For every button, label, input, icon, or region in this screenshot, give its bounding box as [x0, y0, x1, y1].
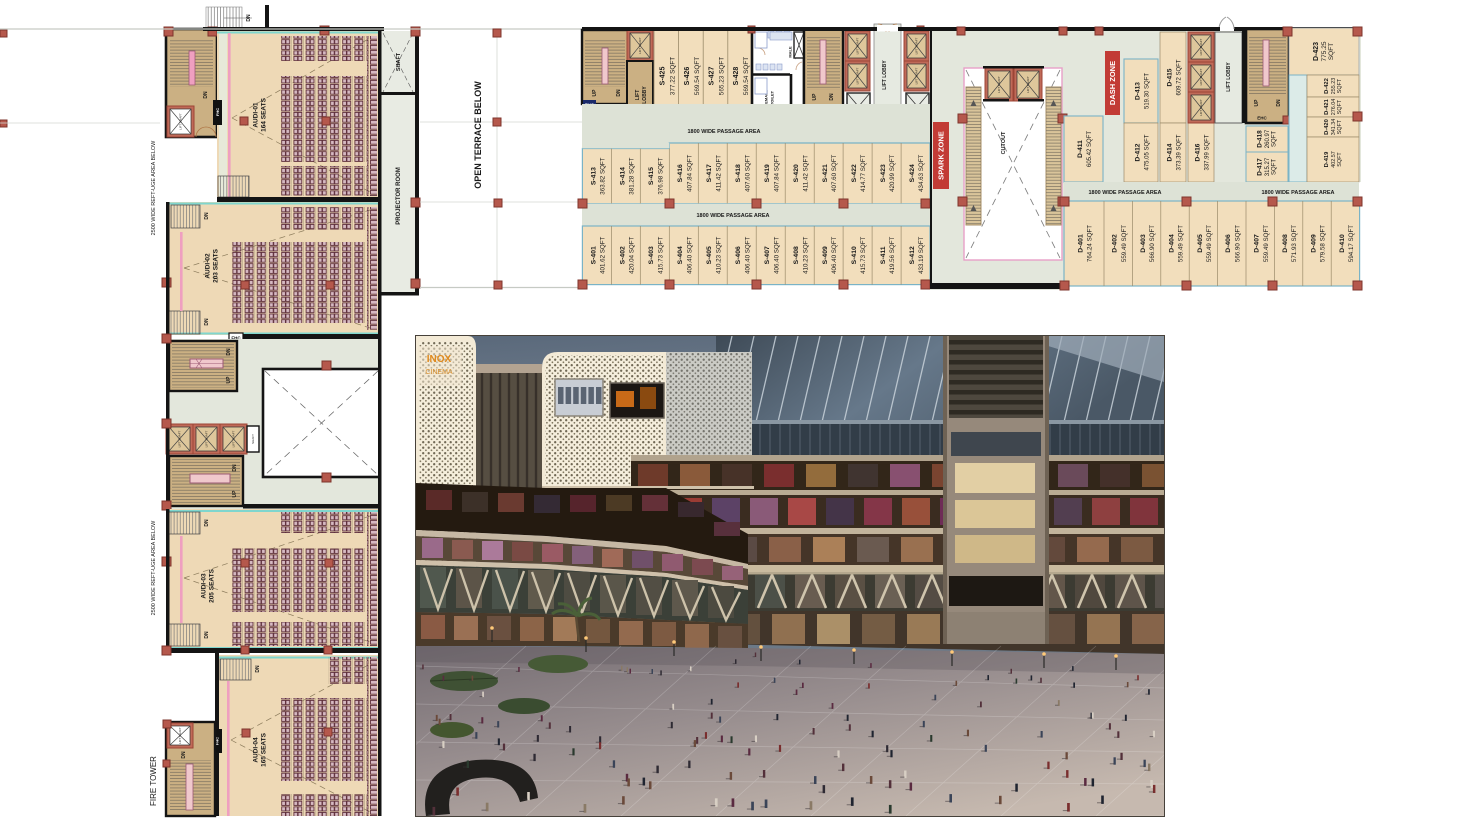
svg-text:411.42 SQFT: 411.42 SQFT	[802, 155, 809, 192]
svg-text:1800 WIDE PASSAGE AREA: 1800 WIDE PASSAGE AREA	[1088, 190, 1161, 196]
svg-text:S-408: S-408	[793, 246, 800, 264]
svg-text:LIFT SHAFT: LIFT SHAFT	[1199, 38, 1203, 55]
svg-text:1800 WIDE PASSAGE AREA: 1800 WIDE PASSAGE AREA	[696, 213, 769, 219]
svg-text:S-418: S-418	[735, 164, 742, 182]
svg-text:PROJECTOR ROOM: PROJECTOR ROOM	[396, 167, 402, 225]
svg-text:407.84 SQFT: 407.84 SQFT	[686, 155, 693, 192]
svg-text:DN: DN	[616, 89, 622, 97]
svg-text:579.58 SQFT: 579.58 SQFT	[1320, 225, 1327, 262]
svg-text:569.54 SQFT: 569.54 SQFT	[743, 57, 750, 95]
svg-text:AUDI-04: AUDI-04	[252, 737, 259, 763]
svg-text:401.62 SQFT: 401.62 SQFT	[600, 237, 607, 274]
svg-text:164 SEATS: 164 SEATS	[260, 97, 267, 132]
svg-text:S-406: S-406	[735, 246, 742, 264]
svg-text:475.05 SQFT: 475.05 SQFT	[1145, 134, 1151, 170]
svg-text:D-422: D-422	[1324, 78, 1330, 94]
svg-text:406.40 SQFT: 406.40 SQFT	[744, 237, 751, 274]
svg-text:S-422: S-422	[851, 164, 858, 182]
svg-text:377.22 SQFT: 377.22 SQFT	[669, 57, 676, 95]
svg-text:S-414: S-414	[619, 167, 626, 185]
svg-text:S-404: S-404	[677, 246, 684, 264]
svg-text:D-421: D-421	[1324, 98, 1330, 115]
svg-text:414.77 SQFT: 414.77 SQFT	[860, 155, 867, 192]
svg-text:381.28 SQFT: 381.28 SQFT	[629, 157, 636, 194]
svg-text:411.42 SQFT: 411.42 SQFT	[715, 155, 722, 192]
svg-text:SQFT: SQFT	[1337, 119, 1343, 134]
svg-text:S-421: S-421	[822, 164, 829, 182]
svg-text:LIFT SHAFT: LIFT SHAFT	[205, 430, 209, 447]
svg-text:LIFT LOBBY: LIFT LOBBY	[1226, 62, 1232, 92]
svg-text:DN: DN	[203, 91, 209, 99]
svg-text:DN: DN	[232, 464, 238, 472]
svg-text:D-409: D-409	[1310, 234, 1317, 253]
svg-text:376.98 SQFT: 376.98 SQFT	[657, 157, 664, 194]
svg-text:594.17 SQFT: 594.17 SQFT	[1348, 225, 1355, 262]
svg-text:S-411: S-411	[880, 246, 887, 264]
svg-text:LIFT SHAFT: LIFT SHAFT	[1026, 76, 1030, 93]
svg-text:UP: UP	[592, 89, 598, 97]
svg-text:AUDI-01: AUDI-01	[252, 102, 259, 128]
svg-text:605.42 SQFT: 605.42 SQFT	[1087, 131, 1093, 167]
svg-text:609.72 SQFT: 609.72 SQFT	[1177, 59, 1183, 95]
svg-text:434.63 SQFT: 434.63 SQFT	[918, 155, 925, 192]
svg-text:406.40 SQFT: 406.40 SQFT	[686, 237, 693, 274]
svg-text:SHAFT: SHAFT	[396, 52, 402, 71]
svg-text:2500 WIDE REFT-UGE AREA BELOW: 2500 WIDE REFT-UGE AREA BELOW	[151, 520, 157, 616]
svg-text:S-410: S-410	[851, 246, 858, 264]
svg-text:DN: DN	[204, 212, 210, 220]
svg-text:S-409: S-409	[822, 246, 829, 264]
svg-text:SPARK ZONE: SPARK ZONE	[937, 131, 946, 180]
svg-text:433.19 SQFT: 433.19 SQFT	[918, 237, 925, 274]
svg-text:EHC: EHC	[1257, 116, 1267, 121]
svg-text:203 SEATS: 203 SEATS	[212, 248, 219, 283]
svg-text:D-411: D-411	[1077, 140, 1084, 158]
svg-text:406.40 SQFT: 406.40 SQFT	[773, 237, 780, 274]
svg-text:569.54 SQFT: 569.54 SQFT	[694, 57, 701, 95]
svg-text:S-407: S-407	[764, 246, 771, 264]
svg-text:LIFT SHAFT: LIFT SHAFT	[997, 76, 1001, 93]
svg-text:D-420: D-420	[1324, 119, 1330, 135]
svg-text:SQFT: SQFT	[1271, 159, 1277, 175]
svg-text:519.30 SQFT: 519.30 SQFT	[1145, 73, 1151, 109]
svg-text:315.27: 315.27	[1265, 157, 1271, 176]
svg-text:764.24 SQFT: 764.24 SQFT	[1087, 225, 1094, 262]
svg-text:FHC: FHC	[215, 108, 220, 116]
svg-text:LIFT SHAFT: LIFT SHAFT	[638, 37, 642, 54]
svg-text:LIFT SHAFT: LIFT SHAFT	[856, 67, 860, 84]
svg-text:1800 WIDE PASSAGE AREA: 1800 WIDE PASSAGE AREA	[1261, 190, 1334, 196]
svg-text:UP: UP	[232, 490, 238, 498]
svg-text:UP: UP	[1254, 99, 1260, 107]
svg-text:S-401: S-401	[590, 246, 597, 264]
svg-text:S-413: S-413	[590, 167, 597, 185]
svg-text:DN: DN	[181, 751, 187, 759]
svg-text:S-416: S-416	[677, 164, 684, 182]
svg-text:2500 WIDE REFT-UGE AREA BELOW: 2500 WIDE REFT-UGE AREA BELOW	[151, 140, 157, 236]
svg-text:415.73 SQFT: 415.73 SQFT	[860, 237, 867, 274]
svg-text:D-407: D-407	[1254, 234, 1261, 253]
svg-text:SQFT: SQFT	[1271, 131, 1277, 147]
svg-text:1800 WIDE PASSAGE AREA: 1800 WIDE PASSAGE AREA	[687, 129, 760, 135]
svg-text:566.90 SQFT: 566.90 SQFT	[1149, 225, 1156, 262]
svg-text:CUTOUT: CUTOUT	[1001, 131, 1007, 154]
svg-text:S-415: S-415	[648, 167, 655, 185]
svg-text:D-419: D-419	[1324, 151, 1330, 168]
svg-text:LOBBY: LOBBY	[642, 86, 648, 104]
svg-text:566.90 SQFT: 566.90 SQFT	[1234, 225, 1241, 262]
svg-text:363.82 SQFT: 363.82 SQFT	[600, 157, 607, 194]
svg-text:LIFT SHAFT: LIFT SHAFT	[915, 67, 919, 84]
svg-text:LIFT SHAFT: LIFT SHAFT	[1199, 68, 1203, 85]
svg-text:DASH ZONE: DASH ZONE	[1108, 61, 1117, 105]
svg-text:415.73 SQFT: 415.73 SQFT	[657, 237, 664, 274]
svg-text:D-404: D-404	[1168, 234, 1175, 253]
svg-text:S-428: S-428	[733, 67, 740, 86]
svg-text:419.56 SQFT: 419.56 SQFT	[889, 237, 896, 274]
svg-text:S-405: S-405	[706, 246, 713, 264]
svg-text:S-420: S-420	[793, 164, 800, 182]
svg-text:D-414: D-414	[1167, 143, 1174, 161]
svg-text:260.97: 260.97	[1265, 129, 1271, 148]
svg-text:D-406: D-406	[1225, 234, 1232, 253]
svg-text:775.25: 775.25	[1321, 41, 1328, 61]
svg-text:D-413: D-413	[1135, 82, 1142, 100]
svg-text:337.99 SQFT: 337.99 SQFT	[1205, 134, 1211, 170]
svg-text:D-412: D-412	[1135, 143, 1142, 161]
svg-text:AUDI-03: AUDI-03	[200, 573, 207, 599]
svg-text:FIRE TOWER: FIRE TOWER	[149, 756, 158, 806]
svg-text:S-412: S-412	[909, 246, 916, 264]
svg-text:SQFT: SQFT	[1337, 99, 1343, 114]
svg-text:D-418: D-418	[1257, 130, 1264, 148]
svg-text:LIFT SHAFT: LIFT SHAFT	[179, 113, 183, 130]
svg-text:DN: DN	[1276, 99, 1282, 107]
svg-text:D-410: D-410	[1339, 234, 1346, 253]
svg-text:D-423: D-423	[1313, 42, 1320, 61]
svg-text:571.93 SQFT: 571.93 SQFT	[1291, 225, 1298, 262]
svg-text:SQFT: SQFT	[1337, 152, 1343, 167]
svg-text:D-415: D-415	[1167, 68, 1174, 86]
svg-text:DN: DN	[204, 318, 210, 326]
svg-text:559.49 SQFT: 559.49 SQFT	[1263, 225, 1270, 262]
svg-text:AUDI-02: AUDI-02	[204, 253, 211, 279]
svg-text:D-408: D-408	[1282, 234, 1289, 253]
svg-text:LIFT: LIFT	[635, 90, 641, 101]
svg-text:SQFT: SQFT	[1328, 43, 1335, 60]
svg-text:D-403: D-403	[1140, 234, 1147, 253]
svg-text:LIFT SHAFT: LIFT SHAFT	[1199, 99, 1203, 116]
svg-text:UP: UP	[226, 376, 232, 384]
svg-text:559.49 SQFT: 559.49 SQFT	[1206, 225, 1213, 262]
svg-text:INOX: INOX	[427, 354, 452, 365]
svg-text:559.49 SQFT: 559.49 SQFT	[1178, 225, 1185, 262]
svg-text:DN: DN	[226, 348, 232, 356]
svg-text:S-419: S-419	[764, 164, 771, 182]
svg-text:D-416: D-416	[1195, 143, 1202, 161]
svg-text:D-405: D-405	[1197, 234, 1204, 253]
svg-text:UP: UP	[812, 93, 818, 101]
svg-text:SQFT: SQFT	[1337, 78, 1343, 93]
svg-text:S-425: S-425	[659, 67, 666, 86]
svg-text:LIFT SHAFT: LIFT SHAFT	[232, 430, 236, 447]
svg-text:373.39 SQFT: 373.39 SQFT	[1177, 134, 1183, 170]
svg-text:MALE: MALE	[787, 46, 792, 58]
svg-text:565.23 SQFT: 565.23 SQFT	[719, 57, 726, 95]
svg-text:D-401: D-401	[1077, 234, 1084, 253]
svg-text:LIFT SHAFT: LIFT SHAFT	[856, 37, 860, 54]
svg-text:LIFT LOBBY: LIFT LOBBY	[882, 60, 888, 90]
svg-text:205 SEATS: 205 SEATS	[208, 568, 215, 603]
svg-text:407.60 SQFT: 407.60 SQFT	[744, 155, 751, 192]
svg-text:LIFT SHAFT: LIFT SHAFT	[178, 727, 182, 744]
svg-text:TOILET: TOILET	[769, 90, 774, 105]
svg-text:S-424: S-424	[909, 164, 916, 182]
svg-text:S-427: S-427	[709, 67, 716, 86]
svg-text:DN: DN	[255, 665, 261, 673]
svg-text:S-423: S-423	[880, 164, 887, 182]
svg-text:410.23 SQFT: 410.23 SQFT	[802, 237, 809, 274]
svg-text:S-402: S-402	[619, 246, 626, 264]
svg-text:D-417: D-417	[1257, 158, 1264, 176]
svg-text:CINEMA: CINEMA	[425, 369, 453, 376]
svg-text:DN: DN	[829, 93, 835, 101]
svg-text:165 SEATS: 165 SEATS	[260, 732, 267, 767]
svg-text:LIFT SHAFT: LIFT SHAFT	[915, 37, 919, 54]
svg-text:559.49 SQFT: 559.49 SQFT	[1121, 225, 1128, 262]
svg-text:407.60 SQFT: 407.60 SQFT	[831, 155, 838, 192]
svg-text:S-417: S-417	[706, 164, 713, 182]
svg-text:DN: DN	[246, 14, 252, 22]
svg-text:420.04 SQFT: 420.04 SQFT	[629, 237, 636, 274]
svg-text:S-403: S-403	[648, 246, 655, 264]
svg-text:420.99 SQFT: 420.99 SQFT	[889, 155, 896, 192]
svg-text:410.23 SQFT: 410.23 SQFT	[715, 237, 722, 274]
svg-text:SHAFT: SHAFT	[251, 434, 255, 444]
svg-text:DN: DN	[204, 631, 210, 639]
svg-text:407.84 SQFT: 407.84 SQFT	[773, 155, 780, 192]
svg-text:406.40 SQFT: 406.40 SQFT	[831, 237, 838, 274]
svg-text:LIFT SHAFT: LIFT SHAFT	[178, 430, 182, 447]
svg-text:D-402: D-402	[1112, 234, 1119, 253]
svg-text:DN: DN	[204, 519, 210, 527]
svg-text:OPEN TERRACE BELOW: OPEN TERRACE BELOW	[473, 81, 483, 189]
svg-text:S-426: S-426	[684, 67, 691, 86]
